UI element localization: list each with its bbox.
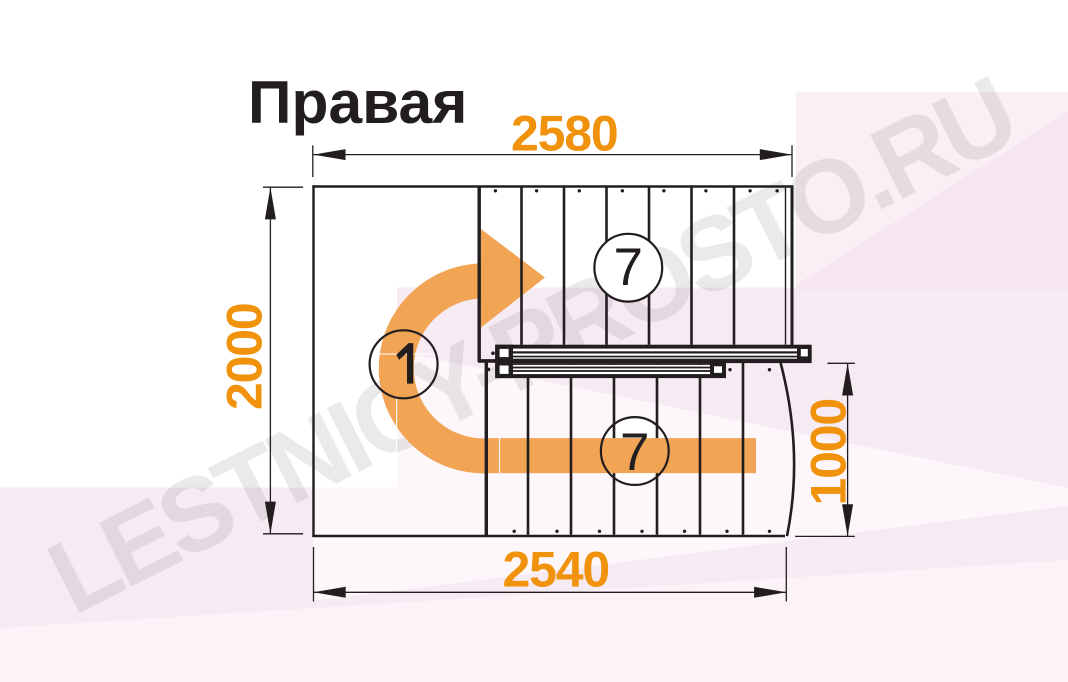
svg-text:2000: 2000 (217, 304, 273, 410)
svg-text:7: 7 (620, 423, 649, 482)
svg-text:2580: 2580 (511, 106, 617, 162)
svg-text:2540: 2540 (503, 542, 609, 598)
svg-text:7: 7 (614, 238, 643, 297)
svg-text:Правая: Правая (248, 68, 467, 136)
svg-text:1000: 1000 (801, 399, 857, 505)
